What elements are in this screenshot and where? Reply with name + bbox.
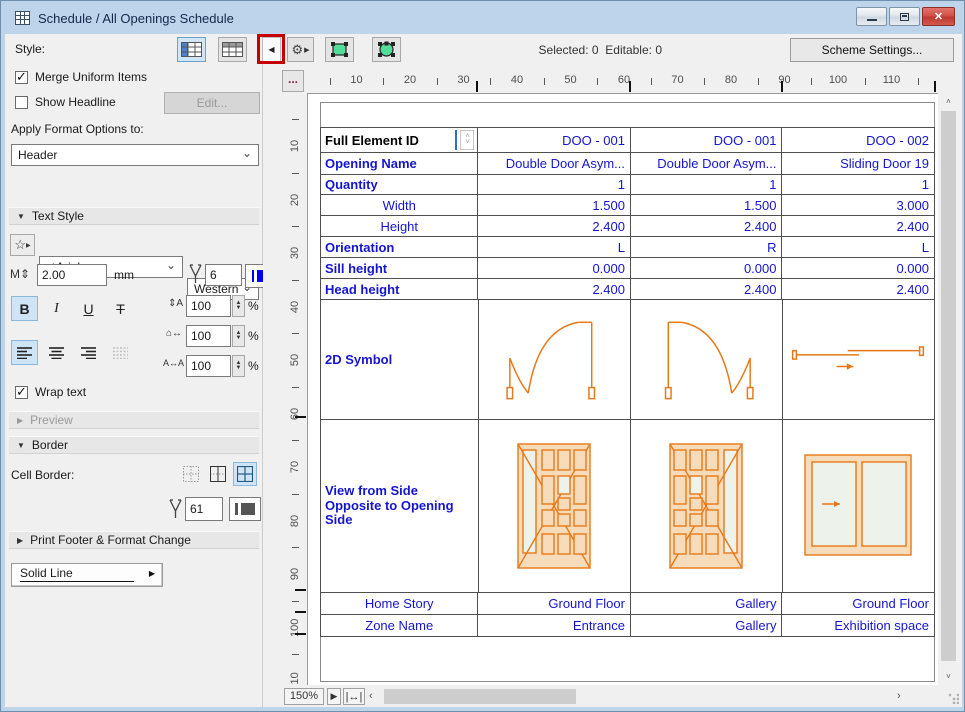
h-ruler-tick xyxy=(918,78,919,85)
checkbox-box[interactable] xyxy=(15,96,28,109)
title-bar[interactable]: Schedule / All Openings Schedule ✕ xyxy=(4,3,961,33)
cell-zone-name[interactable]: Entrance xyxy=(477,615,630,636)
v-ruler-tick xyxy=(292,333,299,334)
h-ruler-boundary-mark xyxy=(629,81,631,92)
cell-full-element-id[interactable]: DOO - 002 xyxy=(781,128,934,152)
zoom-flyout-button[interactable]: ▶ xyxy=(327,688,341,705)
table-row-full-element-id: Full Element ID˄˅DOO - 001DOO - 001DOO -… xyxy=(321,128,934,152)
table-row-width: Width1.5001.5003.000 xyxy=(321,194,934,215)
vertical-scrollbar[interactable]: ˄ ˅ xyxy=(940,93,957,685)
text-pen-field[interactable]: 6 xyxy=(205,264,242,286)
text-style-title: Text Style xyxy=(32,209,84,223)
cell-quantity[interactable]: 1 xyxy=(630,175,782,194)
text-style-section-header[interactable]: ▼ Text Style xyxy=(9,207,259,225)
chevron-down-icon: ⌄ xyxy=(166,258,176,272)
plan-sliding-door-icon xyxy=(788,313,928,407)
row-label-quantity[interactable]: Quantity xyxy=(321,175,477,194)
h-ruler-number: 110 xyxy=(881,74,903,86)
status-bar: 150% ▶ |↔| ‹ › xyxy=(263,687,962,707)
h-ruler-number: 70 xyxy=(667,74,689,86)
h-ruler-tick xyxy=(811,78,812,85)
h-ruler-number: 40 xyxy=(506,74,528,86)
print-footer-title: Print Footer & Format Change xyxy=(30,533,191,547)
italic-button[interactable]: I xyxy=(43,296,70,321)
print-footer-section-header[interactable]: ▶ Print Footer & Format Change xyxy=(9,531,259,549)
show-headline-checkbox[interactable]: Show Headline xyxy=(15,95,116,109)
edit-headline-button[interactable]: Edit... xyxy=(164,92,260,114)
v-ruler-number: 20 xyxy=(289,191,301,209)
schedule-toolbar: Style: ◀ ⚙▶ xyxy=(5,34,962,64)
favorite-star-button[interactable]: ☆▶ xyxy=(10,234,35,256)
cell-full-element-id[interactable]: DOO - 001 xyxy=(630,128,782,152)
row-label-sill-height[interactable]: Sill height xyxy=(321,258,477,278)
preview-title: Preview xyxy=(30,413,73,427)
cell-sill-height[interactable]: 0.000 xyxy=(630,258,782,278)
h-ruler-number: 90 xyxy=(774,74,796,86)
align-center-button[interactable] xyxy=(43,340,70,365)
elev-sliding-door-drawing[interactable] xyxy=(782,420,935,592)
cell-opening-name[interactable]: Double Door Asym... xyxy=(630,153,782,174)
checkbox-box[interactable] xyxy=(15,386,28,399)
v-ruler-tick xyxy=(292,226,299,227)
table-row-quantity: Quantity111 xyxy=(321,174,934,194)
elev-sliding-door-icon xyxy=(802,452,914,560)
h-ruler-tick xyxy=(330,78,331,85)
width-factor-spinner[interactable]: ▲▼ xyxy=(232,325,245,347)
line-spacing-icon: ⇕A xyxy=(168,298,183,309)
v-ruler-tick xyxy=(292,119,299,120)
restore-icon xyxy=(900,13,909,21)
table-row-orientation: OrientationLRL xyxy=(321,236,934,257)
v-ruler-number: 60 xyxy=(289,405,301,423)
minimize-icon xyxy=(867,18,877,21)
v-ruler-boundary-mark xyxy=(295,416,306,418)
cell-sill-height[interactable]: 0.000 xyxy=(781,258,934,278)
cell-head-height[interactable]: 2.400 xyxy=(477,279,630,299)
scheme-settings-button[interactable]: Scheme Settings... xyxy=(790,38,954,62)
line-spacing-spinner[interactable]: ▲▼ xyxy=(232,295,245,317)
cell-border-none-button[interactable] xyxy=(179,462,203,486)
v-ruler-tick xyxy=(292,601,299,602)
schedule-page: Full Element ID˄˅DOO - 001DOO - 001DOO -… xyxy=(320,102,935,682)
align-right-button[interactable] xyxy=(75,340,102,365)
table-row-opening-name: Opening NameDouble Door Asym...Double Do… xyxy=(321,152,934,174)
v-ruler-number: 10 xyxy=(289,137,301,155)
align-center-icon xyxy=(49,347,64,359)
schedule-grid-icon xyxy=(15,11,30,25)
v-ruler-number: 70 xyxy=(289,458,301,476)
v-ruler-boundary-mark xyxy=(295,589,306,591)
cell-border-vertical-button[interactable] xyxy=(206,462,230,486)
percent-label: % xyxy=(248,359,259,373)
cell-height[interactable]: 2.400 xyxy=(477,216,630,236)
border-none-icon xyxy=(183,466,199,482)
underline-button[interactable]: U xyxy=(75,296,102,321)
sort-spinner[interactable]: ˄˅ xyxy=(460,130,474,150)
v-ruler-number: 50 xyxy=(289,351,301,369)
border-line-type-button[interactable]: Solid Line ▶ xyxy=(11,563,163,587)
resize-grip[interactable] xyxy=(948,693,959,704)
cell-head-height[interactable]: 2.400 xyxy=(630,279,782,299)
plan-door-left-icon xyxy=(485,314,623,406)
cell-height[interactable]: 2.400 xyxy=(630,216,782,236)
selected-label: Selected: xyxy=(539,43,589,57)
format-panel: Merge Uniform Items Show Headline Edit..… xyxy=(5,64,263,707)
elev-door-right-icon xyxy=(667,441,745,571)
table-style-2-button[interactable] xyxy=(218,37,247,62)
table-row-symbol-2d: 2D Symbol xyxy=(321,299,934,419)
scroll-right-icon[interactable]: › xyxy=(897,690,901,703)
pen-icon xyxy=(169,499,182,522)
h-ruler-number: 30 xyxy=(453,74,475,86)
select-elements-button[interactable] xyxy=(325,37,354,62)
collapse-triangle-icon: ▼ xyxy=(17,441,25,450)
scroll-up-icon[interactable]: ˄ xyxy=(940,93,957,110)
h-ruler-number: 50 xyxy=(560,74,582,86)
char-spacing-field[interactable]: 100 xyxy=(186,355,231,377)
minimize-button[interactable] xyxy=(856,7,887,26)
collapse-triangle-icon: ▶ xyxy=(17,416,23,425)
align-justify-icon xyxy=(113,347,128,359)
pen-icon xyxy=(189,264,202,287)
border-pen-color-swatch[interactable] xyxy=(229,497,261,521)
v-ruler-tick xyxy=(292,494,299,495)
plan-sliding-door-drawing[interactable] xyxy=(782,300,935,419)
collapse-triangle-icon: ▶ xyxy=(17,536,23,545)
font-size-unit: mm xyxy=(114,268,134,282)
ruler-options-button[interactable]: ... xyxy=(282,70,304,92)
h-ruler-number: 20 xyxy=(399,74,421,86)
flyout-arrow-icon: ▶ xyxy=(26,242,31,249)
restore-button[interactable] xyxy=(889,7,920,26)
cell-zone-name[interactable]: Gallery xyxy=(630,615,782,636)
flyout-arrow-icon: ▶ xyxy=(149,569,155,578)
table-style-2-icon xyxy=(222,42,243,57)
cell-quantity[interactable]: 1 xyxy=(781,175,934,194)
cell-opening-name[interactable]: Double Door Asym... xyxy=(477,153,630,174)
zoom-level-button[interactable]: 150% xyxy=(284,688,324,705)
row-label-head-height[interactable]: Head height xyxy=(321,279,477,299)
close-button[interactable]: ✕ xyxy=(922,7,955,26)
table-row-height: Height2.4002.4002.400 xyxy=(321,215,934,236)
cell-sill-height[interactable]: 0.000 xyxy=(477,258,630,278)
window-title: Schedule / All Openings Schedule xyxy=(38,11,234,26)
align-left-button[interactable] xyxy=(11,340,38,365)
plan-door-right-drawing[interactable] xyxy=(630,300,782,419)
table-row-sill-height: Sill height0.0000.0000.000 xyxy=(321,257,934,278)
char-spacing-spinner[interactable]: ▲▼ xyxy=(232,355,245,377)
row-label-height[interactable]: Height xyxy=(321,216,477,236)
plan-door-right-icon xyxy=(637,314,775,406)
h-ruler-tick xyxy=(651,78,652,85)
cell-home-story[interactable]: Gallery xyxy=(630,593,782,614)
cell-home-story[interactable]: Ground Floor xyxy=(781,593,934,614)
row-label-home-story[interactable]: Home Story xyxy=(321,593,477,614)
v-ruler-tick xyxy=(292,654,299,655)
chevron-down-icon: ⌄ xyxy=(242,146,252,160)
row-label-width[interactable]: Width xyxy=(321,195,477,215)
merge-uniform-items-label: Merge Uniform Items xyxy=(35,70,147,84)
h-ruler-boundary-mark xyxy=(781,81,783,92)
fit-width-button[interactable]: |↔| xyxy=(343,688,365,705)
table-row-home-story: Home StoryGround FloorGalleryGround Floo… xyxy=(321,592,934,614)
elev-door-right-drawing[interactable] xyxy=(630,420,782,592)
scroll-down-icon[interactable]: ˅ xyxy=(940,668,957,685)
cell-orientation[interactable]: R xyxy=(630,237,782,257)
editable-label: Editable: xyxy=(605,43,652,57)
row-label-full-element-id[interactable]: Full Element ID˄˅ xyxy=(321,128,477,152)
h-ruler-tick xyxy=(490,78,491,85)
table-row-zone-name: Zone NameEntranceGalleryExhibition space xyxy=(321,614,934,636)
cell-orientation[interactable]: L xyxy=(477,237,630,257)
border-section-header[interactable]: ▼ Border xyxy=(9,436,259,454)
cell-zone-name[interactable]: Exhibition space xyxy=(781,615,934,636)
elev-door-left-icon xyxy=(515,441,593,571)
v-ruler-number: 80 xyxy=(289,512,301,530)
scroll-left-icon[interactable]: ‹ xyxy=(369,690,373,703)
line-spacing-field[interactable]: 100 xyxy=(186,295,231,317)
select-rect-icon xyxy=(330,41,349,58)
style-label: Style: xyxy=(15,42,45,56)
select-zone-button[interactable] xyxy=(372,37,401,62)
align-justify-button[interactable] xyxy=(107,340,134,365)
editable-value: 0 xyxy=(655,43,662,57)
cell-height[interactable]: 2.400 xyxy=(781,216,934,236)
width-factor-field[interactable]: 100 xyxy=(186,325,231,347)
v-ruler-number: 90 xyxy=(289,565,301,583)
h-ruler-boundary-mark xyxy=(476,81,478,92)
v-ruler-tick xyxy=(292,280,299,281)
h-ruler-tick xyxy=(704,78,705,85)
v-ruler-tick xyxy=(292,547,299,548)
horizontal-scrollbar[interactable] xyxy=(381,688,894,705)
apply-format-select[interactable]: Header ⌄ xyxy=(11,144,259,166)
border-pen-field[interactable]: 61 xyxy=(185,497,223,521)
line-type-value: Solid Line xyxy=(20,566,73,580)
cell-width[interactable]: 3.000 xyxy=(781,195,934,215)
v-ruler-number: 110 xyxy=(289,672,301,684)
row-label-zone-name[interactable]: Zone Name xyxy=(321,615,477,636)
star-icon: ☆ xyxy=(14,237,26,253)
border-vertical-icon xyxy=(210,466,226,482)
selection-counts: Selected: 0 Editable: 0 xyxy=(539,43,662,57)
vertical-scrollbar-thumb[interactable] xyxy=(941,111,956,661)
row-label-symbol-2d[interactable]: 2D Symbol xyxy=(321,300,478,419)
v-ruler-tick xyxy=(292,387,299,388)
elev-door-left-drawing[interactable] xyxy=(478,420,631,592)
preview-section-header[interactable]: ▶ Preview xyxy=(9,411,259,429)
collapse-panel-button[interactable]: ◀ xyxy=(262,37,281,62)
schedule-content-area: ... 102030405060708090100110 10203040506… xyxy=(263,64,962,707)
v-ruler-number: 40 xyxy=(289,298,301,316)
selected-value: 0 xyxy=(592,43,599,57)
h-ruler-tick xyxy=(383,78,384,85)
row-label-orientation[interactable]: Orientation xyxy=(321,237,477,257)
table-row-head-height: Head height2.4002.4002.400 xyxy=(321,278,934,299)
h-ruler-tick xyxy=(865,78,866,85)
gear-icon: ⚙ xyxy=(291,42,303,58)
show-headline-label: Show Headline xyxy=(35,95,116,109)
align-right-icon xyxy=(81,347,96,359)
width-factor-icon: ⌂↔ xyxy=(166,328,182,339)
pen-color-bar xyxy=(252,270,254,282)
cell-border-label: Cell Border: xyxy=(11,468,74,482)
percent-label: % xyxy=(248,299,259,313)
table-style-1-button[interactable] xyxy=(177,37,206,62)
h-ruler: 102030405060708090100110 xyxy=(307,70,938,92)
select-shape-icon xyxy=(377,41,396,58)
percent-label: % xyxy=(248,329,259,343)
cell-home-story[interactable]: Ground Floor xyxy=(477,593,630,614)
row-label-view-from-side[interactable]: View from Side Opposite to Opening Side xyxy=(321,484,478,529)
merge-uniform-items-checkbox[interactable]: Merge Uniform Items xyxy=(15,70,147,84)
wrap-text-checkbox[interactable]: Wrap text xyxy=(15,385,86,399)
v-ruler-boundary-mark xyxy=(295,633,306,635)
cell-width[interactable]: 1.500 xyxy=(477,195,630,215)
cell-head-height[interactable]: 2.400 xyxy=(781,279,934,299)
v-ruler-number: 30 xyxy=(289,244,301,262)
collapse-arrow-icon: ◀ xyxy=(268,45,274,54)
font-size-field[interactable]: 2.00 xyxy=(37,264,107,286)
cell-full-element-id[interactable]: DOO - 001 xyxy=(477,128,630,152)
cell-width[interactable]: 1.500 xyxy=(630,195,782,215)
h-ruler-tick xyxy=(597,78,598,85)
apply-format-value: Header xyxy=(18,148,57,162)
schedule-table: Full Element ID˄˅DOO - 001DOO - 001DOO -… xyxy=(320,127,935,637)
h-ruler-number: 80 xyxy=(720,74,742,86)
align-left-icon xyxy=(17,347,32,359)
char-spacing-icon: A↔A xyxy=(163,358,184,368)
table-style-1-icon xyxy=(181,42,202,57)
h-ruler-number: 60 xyxy=(613,74,635,86)
checkbox-box[interactable] xyxy=(15,71,28,84)
wrap-text-label: Wrap text xyxy=(35,385,86,399)
h-ruler-boundary-mark xyxy=(934,81,936,92)
schedule-canvas[interactable]: Full Element ID˄˅DOO - 001DOO - 001DOO -… xyxy=(307,93,938,685)
pen-color-bar xyxy=(235,503,238,515)
v-ruler: 102030405060708090100110 xyxy=(284,93,306,684)
h-ruler-number: 10 xyxy=(346,74,368,86)
cell-orientation[interactable]: L xyxy=(781,237,934,257)
border-title: Border xyxy=(32,438,68,452)
cell-quantity[interactable]: 1 xyxy=(477,175,630,194)
schedule-window: Schedule / All Openings Schedule ✕ Style… xyxy=(0,0,965,712)
plan-door-left-drawing[interactable] xyxy=(478,300,631,419)
h-ruler-tick xyxy=(544,78,545,85)
font-size-icon: M⇕ xyxy=(10,267,30,281)
row-label-opening-name[interactable]: Opening Name xyxy=(321,153,477,174)
table-row-view-from-side: View from Side Opposite to Opening Side xyxy=(321,419,934,592)
horizontal-scrollbar-thumb[interactable] xyxy=(384,689,576,704)
apply-format-label: Apply Format Options to: xyxy=(11,122,144,136)
settings-flyout-button[interactable]: ⚙▶ xyxy=(287,37,314,62)
cell-opening-name[interactable]: Sliding Door 19 xyxy=(781,153,934,174)
border-all-icon xyxy=(237,466,253,482)
v-ruler-boundary-mark xyxy=(295,611,306,613)
flyout-arrow-icon: ▶ xyxy=(304,46,309,54)
h-ruler-tick xyxy=(758,78,759,85)
bold-button[interactable]: B xyxy=(11,296,38,321)
collapse-triangle-icon: ▼ xyxy=(17,212,25,221)
h-ruler-tick xyxy=(437,78,438,85)
line-sample xyxy=(20,581,134,582)
strikethrough-button[interactable]: T xyxy=(107,296,134,321)
cell-border-all-button[interactable] xyxy=(233,462,257,486)
h-ruler-number: 100 xyxy=(827,74,849,86)
v-ruler-tick xyxy=(292,440,299,441)
pen-color-block xyxy=(241,503,255,515)
v-ruler-tick xyxy=(292,173,299,174)
